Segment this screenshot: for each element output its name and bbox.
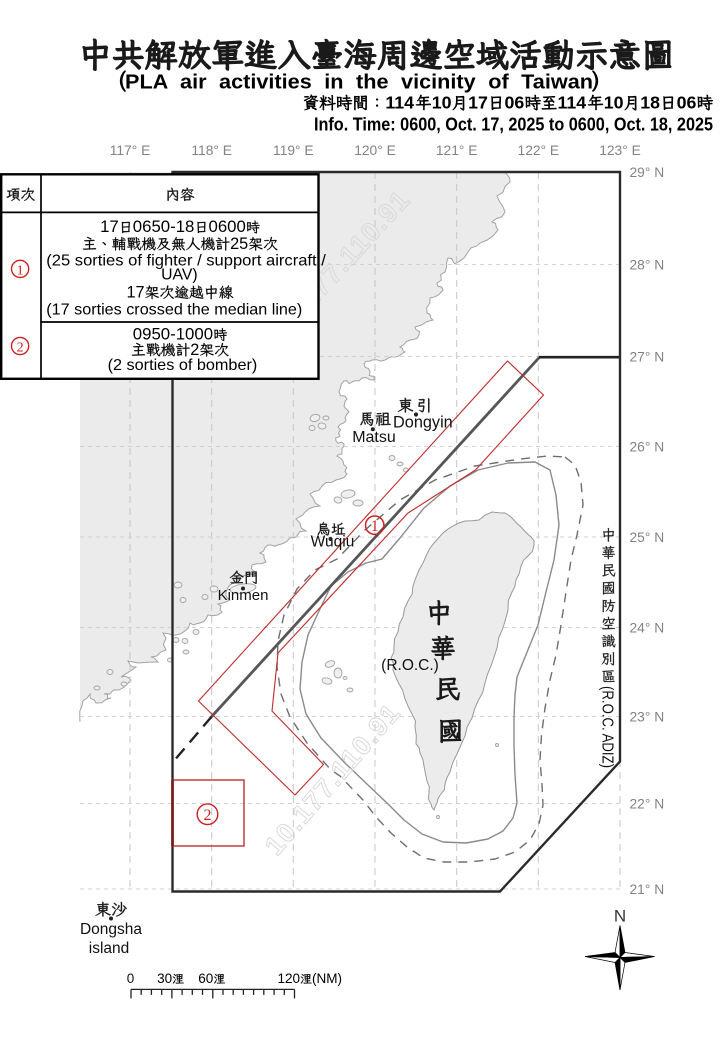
svg-text:17: 17 [127,284,145,302]
svg-text:10: 10 [432,93,452,113]
svg-text:PLA air activities in the vici: PLA air activities in the vicinity of Ta… [125,72,593,94]
svg-text:25° N: 25° N [630,530,665,545]
svg-text:22° N: 22° N [630,797,665,812]
svg-text:29° N: 29° N [630,165,665,180]
svg-text:123° E: 123° E [599,143,641,158]
svg-text:119° E: 119° E [273,143,314,158]
svg-text:Info. Time: 0600, Oct. 17, 202: Info. Time: 0600, Oct. 17, 2025 to 0600,… [314,115,713,135]
svg-text:2: 2 [17,340,24,355]
svg-text:(R.O.C. ADIZ): (R.O.C. ADIZ) [599,686,616,768]
svg-text:30: 30 [157,971,172,986]
svg-text:(R.O.C.): (R.O.C.) [381,657,439,674]
svg-text:06: 06 [505,93,525,113]
svg-text:1: 1 [371,518,379,535]
svg-text:23° N: 23° N [630,710,665,725]
svg-text:60: 60 [198,971,213,986]
svg-text:114: 114 [558,93,587,113]
svg-text:UAV): UAV) [161,267,198,284]
svg-text:06: 06 [677,93,697,113]
svg-text:10: 10 [604,93,624,113]
svg-text:(2 sorties of bomber): (2 sorties of bomber) [108,357,258,374]
svg-text:island: island [89,940,130,957]
svg-text:17: 17 [100,217,119,236]
svg-text:118° E: 118° E [191,143,232,158]
svg-text:Wuqiu: Wuqiu [311,534,355,551]
svg-text:Matsu: Matsu [352,429,396,446]
svg-text:0650-18: 0650-18 [133,217,195,236]
svg-text:24° N: 24° N [630,621,665,636]
svg-text:0: 0 [127,971,135,986]
svg-text:Dongsha: Dongsha [80,921,142,938]
svg-text:17: 17 [468,93,488,113]
svg-text:28° N: 28° N [630,258,665,273]
svg-text:21° N: 21° N [630,882,665,897]
svg-text:Dongyin: Dongyin [393,414,453,432]
svg-text:121° E: 121° E [436,143,478,158]
svg-text:18: 18 [640,93,660,113]
svg-text:122° E: 122° E [518,143,560,158]
svg-text:0600: 0600 [209,217,246,236]
svg-text:120: 120 [278,971,301,986]
svg-text:26° N: 26° N [630,440,665,455]
svg-text:N: N [614,907,626,926]
svg-text:117° E: 117° E [110,143,151,158]
svg-text:114: 114 [385,93,414,113]
svg-text:25: 25 [230,235,248,253]
svg-text:2: 2 [204,807,212,824]
svg-text:27° N: 27° N [630,350,665,365]
svg-text:(NM): (NM) [312,971,342,986]
svg-text:120° E: 120° E [354,143,396,158]
svg-text:1: 1 [17,263,24,278]
svg-text:(17 sorties crossed the median: (17 sorties crossed the median line) [46,302,302,319]
svg-text:0950-1000: 0950-1000 [133,325,213,344]
